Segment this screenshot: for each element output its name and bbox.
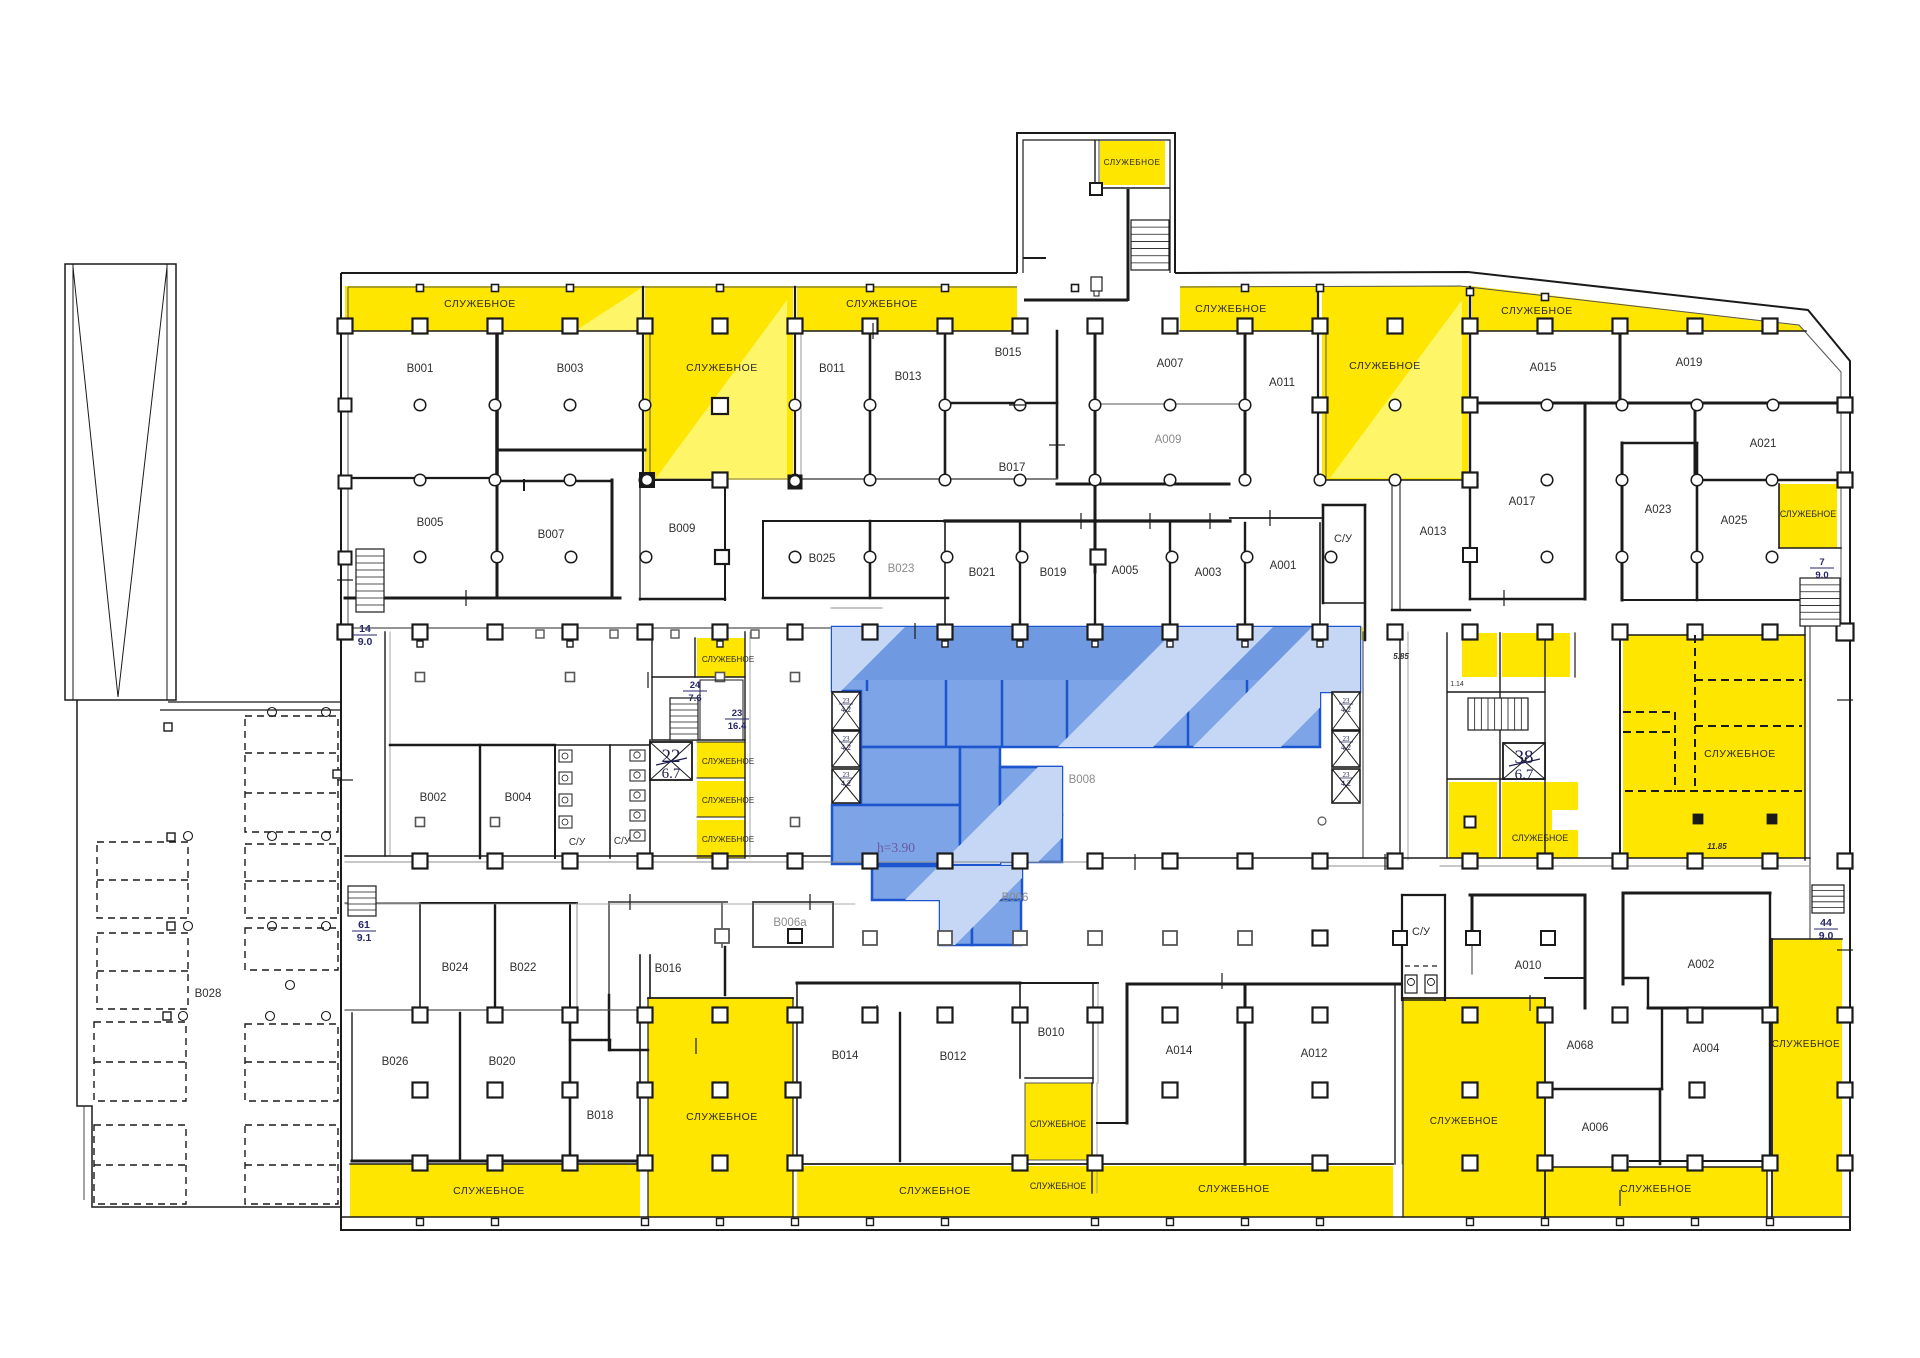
svg-text:СЛУЖЕБНОЕ: СЛУЖЕБНОЕ bbox=[1104, 158, 1161, 167]
svg-text:A010: A010 bbox=[1515, 960, 1542, 972]
svg-text:B010: B010 bbox=[1038, 1027, 1065, 1039]
svg-text:A019: A019 bbox=[1676, 357, 1703, 369]
svg-text:СЛУЖЕБНОЕ: СЛУЖЕБНОЕ bbox=[1780, 509, 1836, 519]
svg-text:23: 23 bbox=[843, 735, 851, 743]
svg-text:B009: B009 bbox=[669, 523, 696, 535]
svg-text:B023: B023 bbox=[888, 563, 915, 575]
svg-text:B002: B002 bbox=[420, 792, 447, 804]
svg-text:СЛУЖЕБНОЕ: СЛУЖЕБНОЕ bbox=[702, 796, 755, 805]
svg-text:A009: A009 bbox=[1155, 434, 1182, 446]
svg-text:23: 23 bbox=[1343, 735, 1351, 743]
svg-text:6.7: 6.7 bbox=[662, 766, 681, 782]
svg-text:B004: B004 bbox=[505, 792, 532, 804]
svg-text:38: 38 bbox=[1515, 747, 1534, 768]
svg-text:B028: B028 bbox=[195, 988, 222, 1000]
svg-text:СЛУЖЕБНОЕ: СЛУЖЕБНОЕ bbox=[1430, 1116, 1498, 1127]
svg-text:A015: A015 bbox=[1530, 362, 1557, 374]
svg-text:24: 24 bbox=[690, 680, 701, 691]
svg-text:7.6: 7.6 bbox=[688, 693, 701, 704]
svg-text:СЛУЖЕБНОЕ: СЛУЖЕБНОЕ bbox=[1704, 748, 1776, 760]
svg-text:A021: A021 bbox=[1750, 438, 1777, 450]
svg-text:СЛУЖЕБНОЕ: СЛУЖЕБНОЕ bbox=[702, 757, 755, 766]
svg-text:СЛУЖЕБНОЕ: СЛУЖЕБНОЕ bbox=[453, 1185, 525, 1197]
svg-text:СЛУЖЕБНОЕ: СЛУЖЕБНОЕ bbox=[846, 298, 918, 310]
svg-text:A007: A007 bbox=[1157, 358, 1184, 370]
svg-text:9.0: 9.0 bbox=[358, 636, 373, 648]
svg-text:61: 61 bbox=[358, 919, 370, 931]
svg-text:B024: B024 bbox=[442, 962, 469, 974]
svg-text:4.2: 4.2 bbox=[841, 705, 851, 714]
svg-text:B007: B007 bbox=[538, 529, 565, 541]
svg-text:A006: A006 bbox=[1582, 1122, 1609, 1134]
svg-text:23: 23 bbox=[843, 771, 851, 779]
svg-text:С/У: С/У bbox=[1334, 533, 1353, 545]
svg-text:B015: B015 bbox=[995, 347, 1022, 359]
svg-text:B017: B017 bbox=[999, 462, 1026, 474]
svg-text:23: 23 bbox=[843, 697, 851, 705]
svg-text:B022: B022 bbox=[510, 962, 537, 974]
svg-text:СЛУЖЕБНОЕ: СЛУЖЕБНОЕ bbox=[702, 835, 755, 844]
svg-text:B018: B018 bbox=[587, 1110, 614, 1122]
svg-text:A068: A068 bbox=[1567, 1040, 1594, 1052]
svg-text:B006a: B006a bbox=[773, 917, 807, 929]
svg-text:С/У: С/У bbox=[614, 836, 631, 847]
svg-text:A005: A005 bbox=[1112, 565, 1139, 577]
svg-text:A017: A017 bbox=[1509, 496, 1536, 508]
svg-text:23: 23 bbox=[732, 708, 743, 719]
svg-text:С/У: С/У bbox=[1412, 926, 1431, 938]
svg-text:A012: A012 bbox=[1301, 1048, 1328, 1060]
svg-text:СЛУЖЕБНОЕ: СЛУЖЕБНОЕ bbox=[1349, 360, 1421, 372]
svg-text:4.2: 4.2 bbox=[1341, 779, 1351, 788]
svg-text:9.0: 9.0 bbox=[1819, 930, 1834, 942]
svg-text:23: 23 bbox=[1343, 697, 1351, 705]
svg-text:B025: B025 bbox=[809, 553, 836, 565]
svg-text:B020: B020 bbox=[489, 1056, 516, 1068]
svg-text:СЛУЖЕБНОЕ: СЛУЖЕБНОЕ bbox=[686, 362, 758, 374]
svg-text:СЛУЖЕБНОЕ: СЛУЖЕБНОЕ bbox=[1501, 305, 1573, 317]
svg-text:A023: A023 bbox=[1645, 504, 1672, 516]
svg-text:B006: B006 bbox=[1002, 892, 1029, 904]
svg-text:B001: B001 bbox=[407, 363, 434, 375]
svg-text:4.2: 4.2 bbox=[1341, 743, 1351, 752]
svg-text:44: 44 bbox=[1820, 917, 1832, 929]
svg-text:B011: B011 bbox=[819, 363, 845, 375]
svg-text:B003: B003 bbox=[557, 363, 584, 375]
svg-text:9.0: 9.0 bbox=[1815, 570, 1828, 581]
svg-text:14: 14 bbox=[359, 623, 371, 635]
svg-text:B021: B021 bbox=[969, 567, 996, 579]
svg-text:B014: B014 bbox=[832, 1050, 859, 1062]
svg-text:B005: B005 bbox=[417, 517, 444, 529]
svg-text:СЛУЖЕБНОЕ: СЛУЖЕБНОЕ bbox=[1195, 303, 1267, 315]
svg-text:СЛУЖЕБНОЕ: СЛУЖЕБНОЕ bbox=[1198, 1183, 1270, 1195]
svg-text:СЛУЖЕБНОЕ: СЛУЖЕБНОЕ bbox=[1620, 1183, 1692, 1195]
svg-text:5.85: 5.85 bbox=[1393, 652, 1409, 661]
svg-text:A001: A001 bbox=[1270, 560, 1297, 572]
svg-text:A014: A014 bbox=[1166, 1045, 1193, 1057]
svg-text:A003: A003 bbox=[1195, 567, 1222, 579]
svg-text:СЛУЖЕБНОЕ: СЛУЖЕБНОЕ bbox=[899, 1185, 971, 1197]
svg-text:B012: B012 bbox=[940, 1051, 967, 1063]
svg-text:СЛУЖЕБНОЕ: СЛУЖЕБНОЕ bbox=[686, 1111, 758, 1123]
svg-text:A013: A013 bbox=[1420, 526, 1447, 538]
svg-text:СЛУЖЕБНОЕ: СЛУЖЕБНОЕ bbox=[1772, 1039, 1840, 1050]
svg-text:B016: B016 bbox=[655, 963, 682, 975]
svg-text:B013: B013 bbox=[895, 371, 922, 383]
svg-text:11.85: 11.85 bbox=[1707, 842, 1727, 851]
svg-text:СЛУЖЕБНОЕ: СЛУЖЕБНОЕ bbox=[702, 655, 755, 664]
svg-text:4.2: 4.2 bbox=[1341, 705, 1351, 714]
svg-text:4.2: 4.2 bbox=[841, 779, 851, 788]
svg-text:СЛУЖЕБНОЕ: СЛУЖЕБНОЕ bbox=[444, 298, 516, 310]
svg-text:С/У: С/У bbox=[569, 837, 586, 848]
svg-text:B026: B026 bbox=[382, 1056, 409, 1068]
svg-text:A011: A011 bbox=[1269, 377, 1295, 389]
svg-text:СЛУЖЕБНОЕ: СЛУЖЕБНОЕ bbox=[1030, 1181, 1086, 1191]
svg-text:B008: B008 bbox=[1069, 774, 1096, 786]
svg-text:СЛУЖЕБНОЕ: СЛУЖЕБНОЕ bbox=[1512, 833, 1568, 843]
svg-text:23: 23 bbox=[1343, 771, 1351, 779]
svg-text:A025: A025 bbox=[1721, 515, 1748, 527]
svg-text:СЛУЖЕБНОЕ: СЛУЖЕБНОЕ bbox=[1030, 1119, 1086, 1129]
svg-text:B019: B019 bbox=[1040, 567, 1067, 579]
svg-text:A004: A004 bbox=[1693, 1043, 1720, 1055]
svg-text:16.4: 16.4 bbox=[728, 721, 747, 732]
svg-text:22: 22 bbox=[662, 746, 681, 767]
svg-text:7: 7 bbox=[1819, 557, 1824, 568]
svg-text:h=3.90: h=3.90 bbox=[877, 840, 915, 855]
svg-text:4.2: 4.2 bbox=[841, 743, 851, 752]
svg-text:6.7: 6.7 bbox=[1515, 767, 1534, 783]
svg-text:1.14: 1.14 bbox=[1450, 681, 1464, 688]
svg-text:A002: A002 bbox=[1688, 959, 1715, 971]
svg-text:9.1: 9.1 bbox=[357, 932, 372, 944]
